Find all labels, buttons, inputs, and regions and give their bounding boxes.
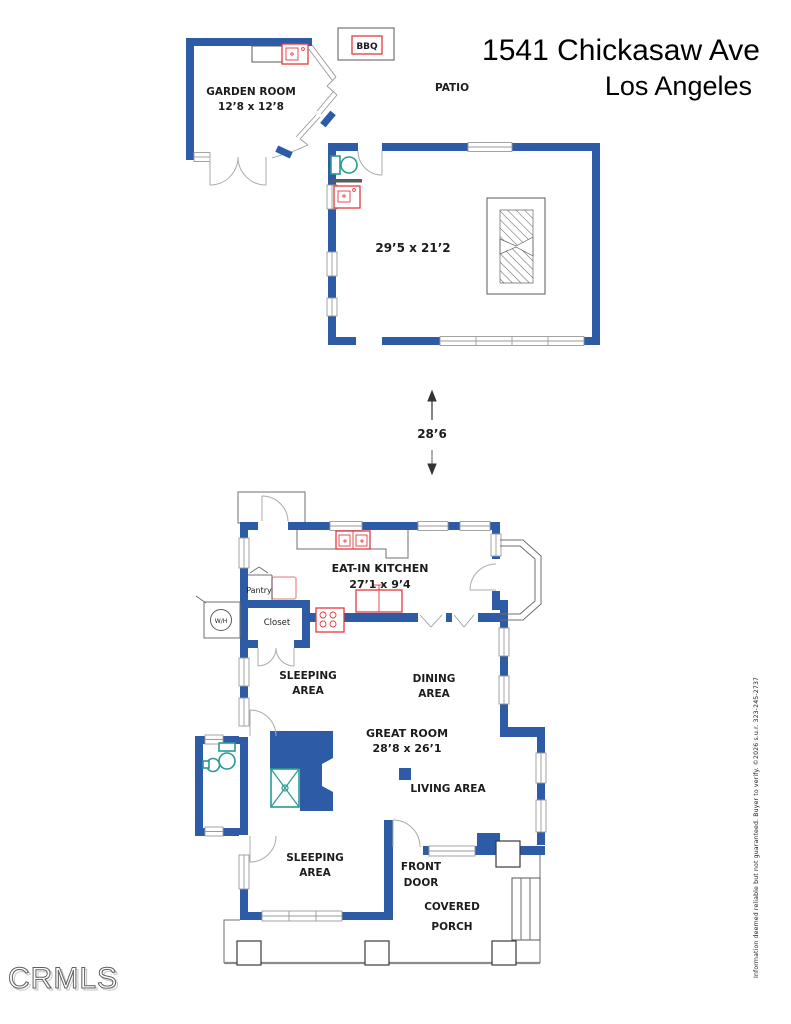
floor-plan-page: 1541 Chickasaw Ave Los Angeles	[0, 0, 791, 1024]
rec-room: 29’5 x 21’2	[327, 142, 600, 346]
fridge-icon	[272, 577, 296, 599]
porch-steps	[512, 878, 540, 940]
porch-pillar-upper	[496, 841, 520, 867]
kitchen-dims: 27’1 x 9’4	[349, 578, 411, 591]
water-heater-icon	[196, 596, 240, 638]
pantry	[248, 567, 272, 600]
sleeping-upper-label-2: AREA	[292, 685, 324, 697]
rec-toilet-icon	[331, 156, 357, 174]
rec-shelf	[330, 179, 362, 183]
floor-plan: 1541 Chickasaw Ave Los Angeles	[0, 0, 791, 1024]
garden-wall-left	[186, 38, 194, 160]
rec-room-dims: 29’5 x 21’2	[375, 241, 450, 255]
covered-porch-label-1: COVERED	[424, 901, 480, 913]
page-subtitle-city: Los Angeles	[605, 71, 752, 101]
arrow-down-icon	[428, 464, 436, 474]
disclaimer-text: Information deemed reliable but not guar…	[752, 677, 760, 978]
crmls-logo: CRMLS	[8, 962, 118, 995]
porch-pillar-3	[492, 941, 516, 965]
rear-vestibule	[238, 492, 305, 523]
garden-french-doors	[210, 157, 266, 185]
garden-accent-a	[320, 111, 336, 128]
pantry-label: Pantry	[246, 586, 272, 595]
page-title: 1541 Chickasaw Ave	[482, 34, 760, 67]
garden-room-dims: 12’8 x 12’8	[218, 101, 284, 113]
garden-sink-icon	[282, 44, 308, 64]
bbq-grill: BBQ	[338, 28, 394, 60]
stove-icon	[316, 608, 344, 632]
covered-porch-label-2: PORCH	[431, 921, 472, 933]
water-heater-label: W/H	[215, 618, 227, 625]
closet-label: Closet	[264, 618, 291, 628]
sleeping-lower-label-1: SLEEPING	[286, 852, 344, 864]
front-door-label-1: FRONT	[401, 861, 442, 873]
bath-sink-icon	[203, 759, 220, 772]
porch-pillar-1	[237, 941, 261, 965]
covered-porch	[224, 841, 540, 965]
great-room-dims: 28’8 x 26’1	[372, 742, 441, 755]
toilet-icon	[219, 743, 235, 769]
kitchen-label: EAT-IN KITCHEN	[332, 562, 429, 575]
garden-room-label: GARDEN ROOM	[206, 86, 296, 98]
patio-label: PATIO	[435, 82, 469, 94]
bbq-label: BBQ	[356, 42, 378, 52]
garden-room: GARDEN ROOM 12’8 x 12’8	[186, 38, 337, 185]
great-room-post	[399, 768, 411, 780]
porch-pillar-2	[365, 941, 389, 965]
front-door-swing	[393, 820, 420, 847]
sleeping-lower-label-2: AREA	[299, 867, 331, 879]
front-door-label-2: DOOR	[404, 877, 439, 889]
shower-icon	[271, 769, 299, 807]
dining-label-2: AREA	[418, 688, 450, 700]
great-room-label: GREAT ROOM	[366, 727, 448, 740]
table-feature	[487, 198, 545, 294]
rec-door	[358, 151, 382, 175]
sleeping-upper-label-1: SLEEPING	[279, 670, 337, 682]
garden-counter	[252, 46, 282, 62]
dining-label-1: DINING	[413, 673, 456, 685]
kitchen-sink-icon	[336, 531, 370, 549]
main-house: EAT-IN KITCHEN 27’1 x 9’4 Pantry Closet …	[195, 492, 546, 965]
header: 1541 Chickasaw Ave Los Angeles	[482, 34, 760, 101]
rec-sink-icon	[334, 186, 360, 208]
separation-dims: 28’6	[417, 427, 447, 441]
living-area-label: LIVING AREA	[410, 783, 486, 795]
rec-wall-right	[592, 143, 600, 345]
arrow-up-icon	[428, 391, 436, 401]
